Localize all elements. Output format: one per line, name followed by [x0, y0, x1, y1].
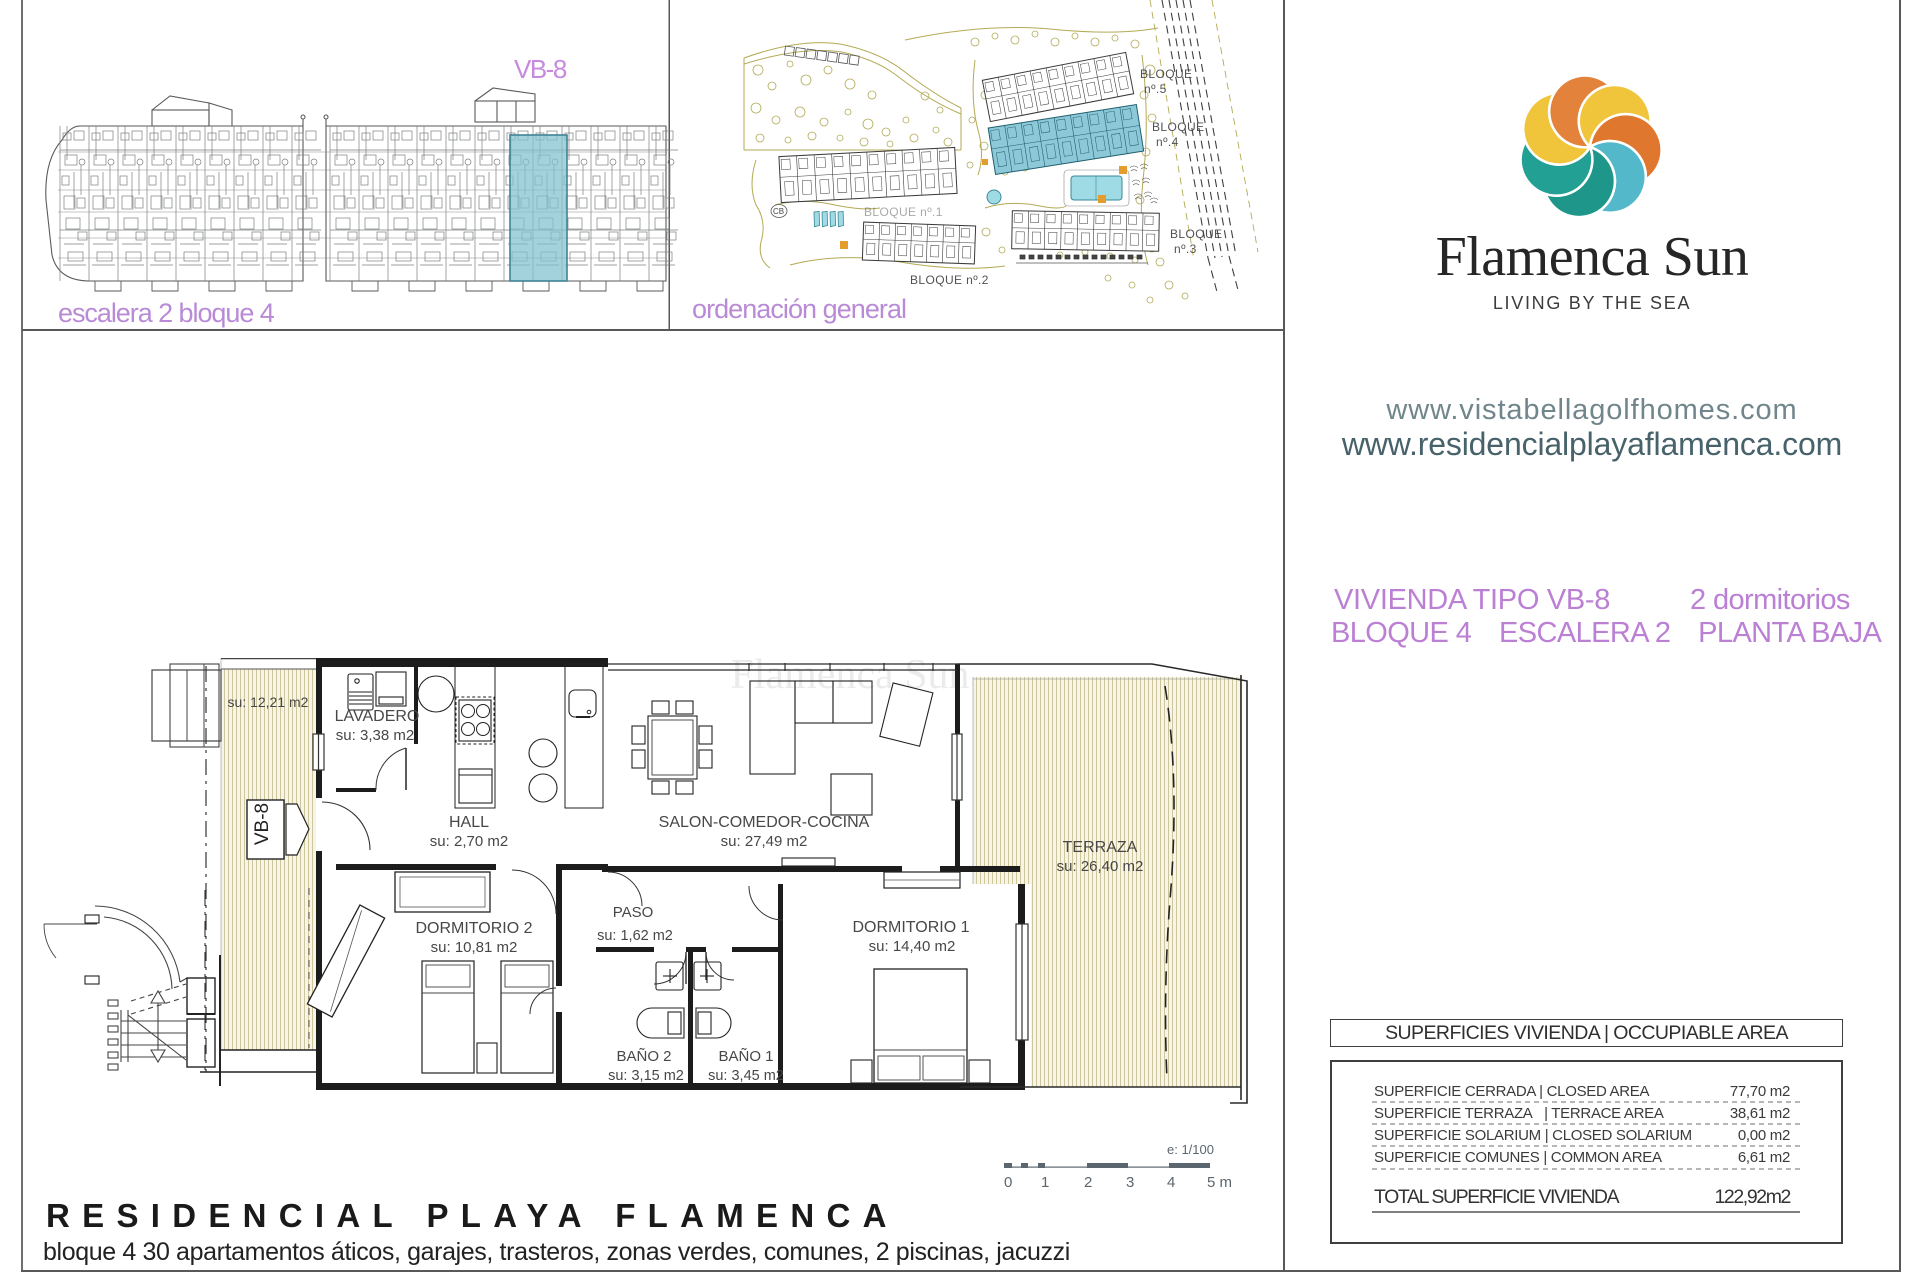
svg-text:PASO: PASO [613, 904, 654, 921]
svg-text:BLOQUE nº.1: BLOQUE nº.1 [864, 205, 943, 219]
svg-text:4: 4 [1167, 1174, 1175, 1191]
svg-text:su: 2,70 m2: su: 2,70 m2 [430, 833, 508, 850]
svg-text:2: 2 [1084, 1174, 1092, 1191]
svg-text:su: 12,21 m2: su: 12,21 m2 [228, 694, 309, 710]
svg-text:BAÑO 1: BAÑO 1 [718, 1048, 773, 1065]
svg-text:nº.3: nº.3 [1174, 242, 1197, 256]
svg-text:CB: CB [773, 207, 784, 216]
svg-text:BLOQUE nº.2: BLOQUE nº.2 [910, 273, 989, 287]
svg-text:BLOQUE: BLOQUE [1170, 227, 1222, 241]
svg-text:Flamenca Sun: Flamenca Sun [730, 652, 969, 698]
svg-text:DORMITORIO 1: DORMITORIO 1 [852, 919, 969, 936]
svg-text:BLOQUE: BLOQUE [1140, 67, 1192, 81]
svg-text:122,92m2: 122,92m2 [1714, 1186, 1790, 1208]
svg-text:5 m: 5 m [1207, 1174, 1232, 1191]
svg-text:su: 27,49 m2: su: 27,49 m2 [721, 833, 808, 850]
svg-text:SUPERFICIE CERRADA | CLOSED A: SUPERFICIE CERRADA | CLOSED AREA [1374, 1083, 1649, 1100]
svg-text:su: 14,40 m2: su: 14,40 m2 [869, 938, 956, 955]
svg-text:nº.4: nº.4 [1156, 135, 1179, 149]
svg-text:LAVADERO: LAVADERO [335, 708, 420, 725]
svg-text:BAÑO 2: BAÑO 2 [616, 1048, 671, 1065]
svg-text:su: 3,38 m2: su: 3,38 m2 [336, 727, 414, 744]
svg-text:su: 3,15 m2: su: 3,15 m2 [608, 1068, 684, 1084]
svg-text:77,70 m2: 77,70 m2 [1730, 1083, 1790, 1100]
svg-text:6,61 m2: 6,61 m2 [1738, 1149, 1790, 1166]
svg-text:3: 3 [1126, 1174, 1134, 1191]
svg-text:su: 1,62 m2: su: 1,62 m2 [597, 928, 673, 944]
svg-text:TOTAL SUPERFICIE VIVIENDA: TOTAL SUPERFICIE VIVIENDA [1374, 1186, 1620, 1208]
svg-text:DORMITORIO 2: DORMITORIO 2 [415, 920, 532, 937]
svg-text:TERRAZA: TERRAZA [1063, 839, 1138, 856]
svg-text:su: 3,45 m2: su: 3,45 m2 [708, 1068, 784, 1084]
svg-text:SUPERFICIE TERRAZA | TERRACE: SUPERFICIE TERRAZA | TERRACE AREA [1374, 1105, 1664, 1122]
svg-text:38,61 m2: 38,61 m2 [1730, 1105, 1790, 1122]
svg-text:SUPERFICIE COMUNES | COMMON AR: SUPERFICIE COMUNES | COMMON AREA [1374, 1149, 1662, 1166]
svg-text:BLOQUE: BLOQUE [1152, 120, 1204, 134]
svg-text:su: 10,81 m2: su: 10,81 m2 [431, 939, 518, 956]
svg-text:nº.5: nº.5 [1144, 82, 1167, 96]
svg-text:SUPERFICIE SOLARIUM | CLOSED S: SUPERFICIE SOLARIUM | CLOSED SOLARIUM [1374, 1127, 1692, 1144]
svg-text:1: 1 [1041, 1174, 1049, 1191]
svg-text:0,00 m2: 0,00 m2 [1738, 1127, 1790, 1144]
svg-text:VB-8: VB-8 [252, 803, 273, 845]
svg-text:su: 26,40 m2: su: 26,40 m2 [1057, 858, 1144, 875]
svg-text:SALON-COMEDOR-COCINA: SALON-COMEDOR-COCINA [659, 814, 870, 831]
svg-text:0: 0 [1004, 1174, 1012, 1191]
svg-text:e: 1/100: e: 1/100 [1167, 1142, 1214, 1157]
svg-text:HALL: HALL [449, 814, 489, 831]
